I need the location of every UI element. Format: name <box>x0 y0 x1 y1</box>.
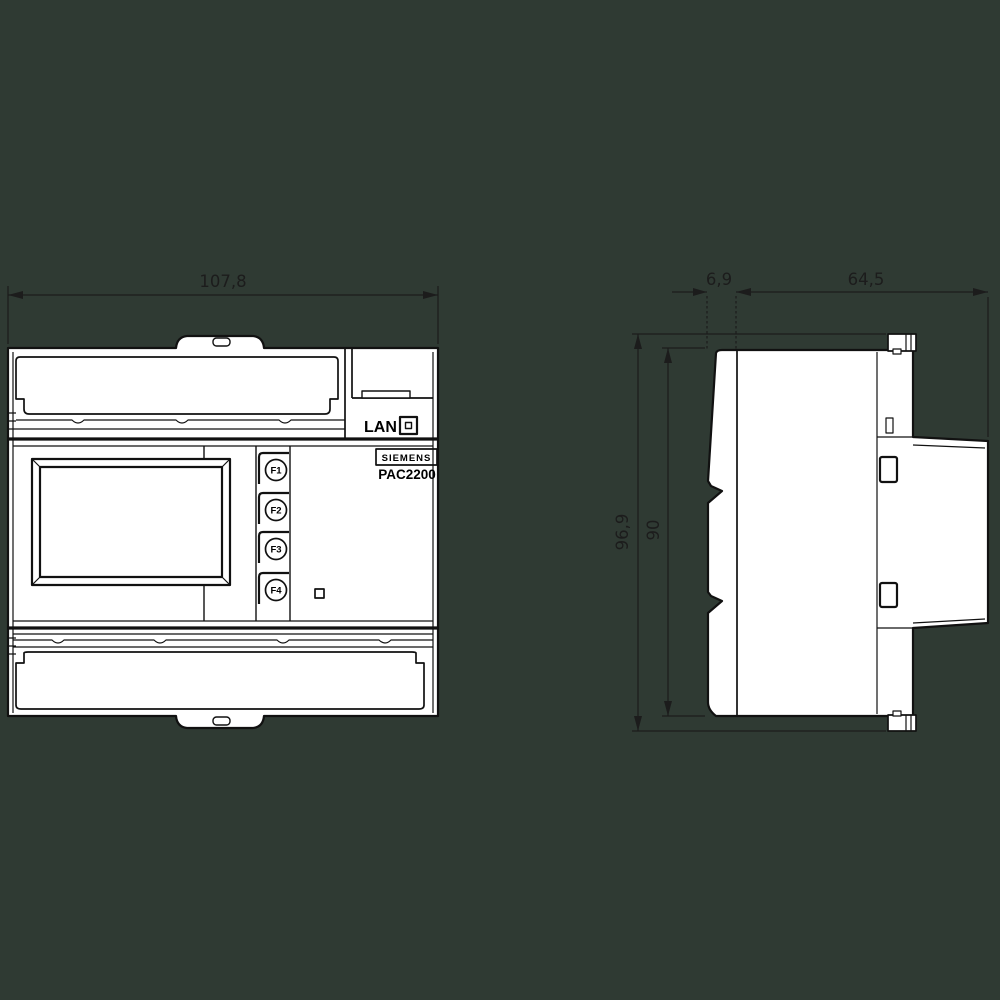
front-width-label: 107,8 <box>199 272 246 291</box>
branding: SIEMENS PAC2200 <box>376 449 437 482</box>
f4-label: F4 <box>270 586 282 597</box>
bottom-tab-slot <box>213 717 230 725</box>
din-clip-top <box>888 334 916 354</box>
lan-port-icon <box>400 417 417 434</box>
din-clip-bottom-foot <box>893 711 901 716</box>
display <box>32 459 230 585</box>
front-depth-label: 6,9 <box>706 270 732 289</box>
body-depth-label: 64,5 <box>848 270 885 289</box>
lan-label: LAN <box>364 419 397 436</box>
f3-label: F3 <box>270 545 281 556</box>
din-clip-top-foot <box>893 349 901 354</box>
rj45-latch <box>362 391 410 398</box>
rail-height-label: 90 <box>644 520 663 541</box>
sealing-slot-upper <box>880 457 897 482</box>
dimension-drawing-canvas: 107,8 LAN <box>0 0 1000 1000</box>
f2-label: F2 <box>270 506 281 517</box>
technical-drawing: 107,8 LAN <box>0 0 1000 1000</box>
siemens-logo: SIEMENS <box>382 453 432 464</box>
top-tab-slot <box>213 338 230 346</box>
din-clip-bottom-body <box>888 715 916 731</box>
f1-label: F1 <box>270 466 282 477</box>
din-clip-top-body <box>888 334 916 351</box>
model-label: PAC2200 <box>378 467 436 482</box>
display-screen <box>40 467 222 577</box>
sealing-slot-lower <box>880 583 897 607</box>
overall-height-label: 96,9 <box>613 514 632 551</box>
